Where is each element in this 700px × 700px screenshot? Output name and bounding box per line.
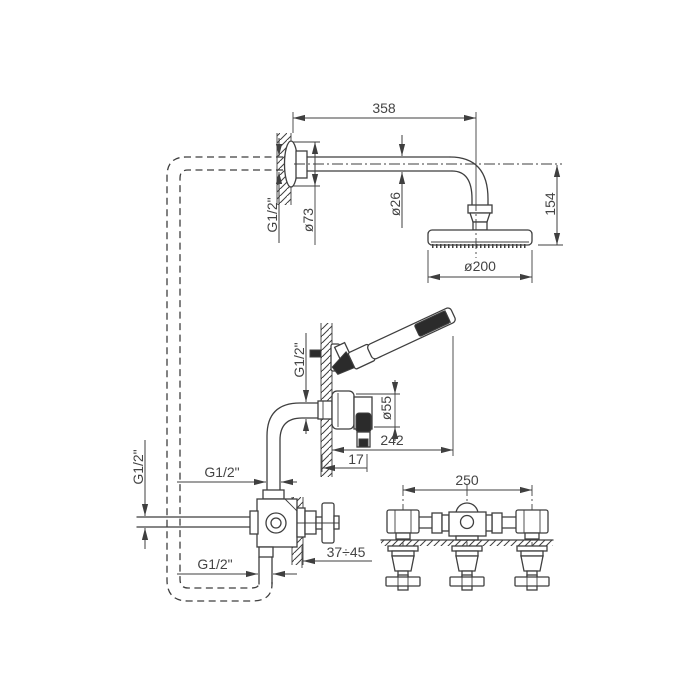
dimension-manifold-spacing: 250 [403,472,532,490]
dimension-label-valve-top-thread: G1/2" [204,464,239,480]
dimension-label-outlet-offset: 17 [348,451,364,467]
handle-right [515,546,549,590]
handle-left [386,546,420,590]
inlet-pipe [137,517,257,527]
dimension-inlet-thread: G1/2" [130,440,146,549]
dimension-label-handshower-supply-thread: G1/2" [291,342,307,377]
dimension-label-flange-diameter: ø73 [300,208,316,232]
shower-arm [285,141,563,205]
dimension-label-outlet-escutcheon: ø55 [378,396,394,420]
dimension-rough-in-depth: 37÷45 [302,544,372,568]
handle-center [450,546,484,590]
technical-drawing-canvas: 358 G1/2" ø73 ø26 154 ø200 G1/2" [0,0,700,700]
shower-head [428,230,532,246]
shower-system-drawing: 358 G1/2" ø73 ø26 154 ø200 G1/2" [0,0,700,700]
shower-head-joint [468,205,492,230]
manifold-handles [386,546,549,590]
dimension-label-rough-in-depth: 37÷45 [327,544,366,560]
dimension-head-diameter: ø200 [428,250,532,283]
valve-handle-side-view [297,503,339,543]
dimension-label-valve-bottom-thread: G1/2" [197,556,232,572]
dimension-valve-top-thread: G1/2" [177,464,297,482]
dimension-label-arm-wall-thread: G1/2" [264,197,280,232]
dimension-label-manifold-spacing: 250 [455,472,479,488]
dimension-label-handshower-reach: 242 [380,432,404,448]
dimension-label-head-drop-height: 154 [542,192,558,216]
dimension-label-arm-tube-diameter: ø26 [387,192,403,216]
diverter-valve [250,490,297,584]
dimension-head-drop-height: 154 [538,165,563,245]
hand-shower-outlet [267,391,372,491]
dimension-label-arm-length: 358 [372,100,396,116]
hand-shower [329,304,457,378]
dimension-arm-tube-diameter: ø26 [387,135,403,228]
dimension-label-inlet-thread: G1/2" [130,449,146,484]
dimension-valve-bottom-thread: G1/2" [177,556,297,574]
dimension-label-head-diameter: ø200 [464,258,496,274]
